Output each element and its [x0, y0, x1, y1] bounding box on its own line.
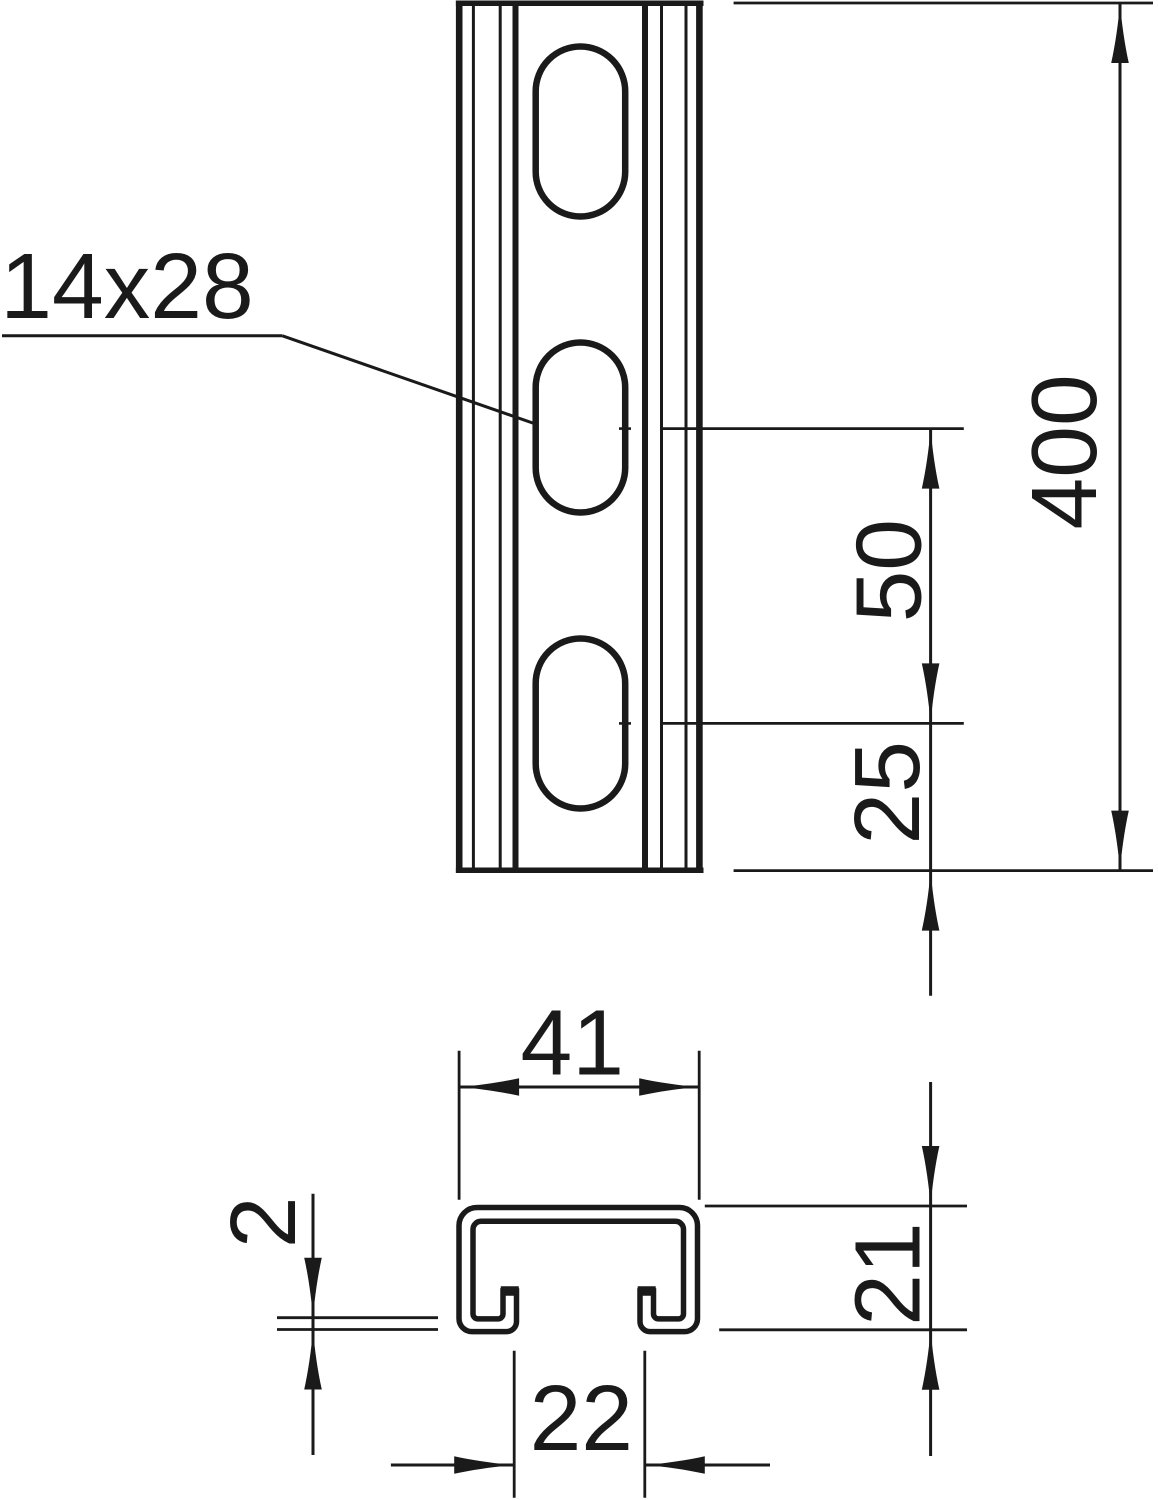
- svg-text:2: 2: [211, 1196, 315, 1248]
- svg-text:22: 22: [530, 1366, 633, 1470]
- svg-text:400: 400: [1012, 374, 1116, 529]
- svg-text:25: 25: [835, 741, 939, 844]
- svg-text:14x28: 14x28: [0, 234, 253, 338]
- svg-text:50: 50: [836, 519, 940, 622]
- svg-text:21: 21: [835, 1222, 939, 1325]
- svg-text:41: 41: [520, 991, 623, 1095]
